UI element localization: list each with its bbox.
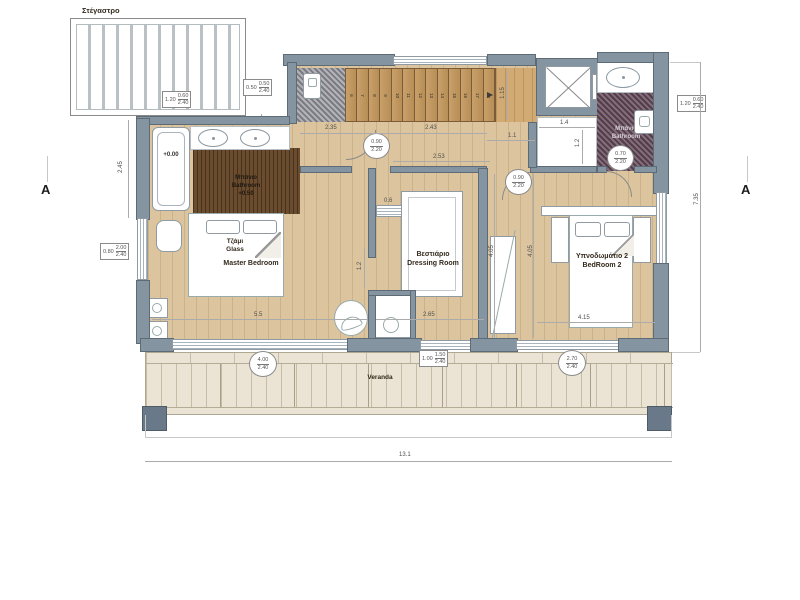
slab-edge <box>145 437 672 438</box>
wall <box>653 263 669 345</box>
dim-line <box>393 161 490 162</box>
dim-box-pergola-num: 0.60 <box>178 93 189 100</box>
dim-label: 4.15 <box>578 315 590 321</box>
fixture-bowl <box>152 303 162 313</box>
wall <box>634 166 657 173</box>
dim-box-top: 0.50 0.50 2.40 <box>243 79 272 96</box>
closet-rod <box>408 197 456 291</box>
dim-label-total-width: 13.1 <box>399 452 411 458</box>
staircase: 6 7 8 9 10 11 12 13 14 15 16 17 18 <box>345 68 496 122</box>
dim-line <box>487 140 535 141</box>
ext-line <box>670 62 700 63</box>
master-sink-2 <box>240 129 270 147</box>
pergola-outline <box>70 18 246 116</box>
slab-edge <box>671 415 672 437</box>
stair-tread: 15 <box>449 69 460 121</box>
wall <box>140 338 174 352</box>
dim-line <box>582 130 583 164</box>
dim-line-total-width <box>145 461 672 462</box>
wall <box>136 118 150 220</box>
window-right <box>656 192 667 265</box>
dim-label: 5.5 <box>254 312 262 318</box>
wall <box>528 122 537 168</box>
dim-circle-window-bedroom2: 2.70 2.40 <box>558 350 586 376</box>
stair-tread: 8 <box>369 69 380 121</box>
dim-line <box>537 322 655 323</box>
ext-line <box>672 352 700 353</box>
dim-box-veranda: 1.00 1.50 2.40 <box>419 350 448 367</box>
dim-box-top-num: 0.50 <box>259 81 270 88</box>
master-bath-label: Μπάνιο Bathroom +0.50 <box>196 175 296 198</box>
window-master-bedroom <box>172 339 348 350</box>
dim-line <box>300 133 393 134</box>
dim-box-pergola: 1.20 0.60 2.40 <box>162 91 191 108</box>
wall <box>287 62 297 124</box>
dim-label: 0.6 <box>384 198 392 204</box>
pillow <box>206 220 240 234</box>
veranda-border-tiles <box>146 353 673 364</box>
section-marker-left: A <box>41 182 50 197</box>
dim-label: 4.05 <box>489 245 495 257</box>
window-bedroom2 <box>516 340 620 350</box>
dim-label: 2.43 <box>425 125 437 131</box>
master-sink-1 <box>198 129 228 147</box>
wall <box>368 290 376 342</box>
dim-box-top-den: 2.40 <box>259 88 270 94</box>
wall <box>597 52 655 63</box>
wall <box>300 166 352 173</box>
wall <box>390 166 487 173</box>
stair-tread: 7 <box>357 69 368 121</box>
dim-line <box>506 70 507 120</box>
bath2-toilet-seat <box>639 116 650 127</box>
stair-tread: 12 <box>415 69 426 121</box>
stair-tread: 11 <box>403 69 414 121</box>
wall <box>530 166 597 173</box>
dim-circle-door-master: 0.90 2.20 <box>363 133 390 159</box>
wall <box>368 290 416 296</box>
dim-label: 1.4 <box>560 120 568 126</box>
dim-label: 1.2 <box>575 139 581 147</box>
dim-label: 4.05 <box>528 245 534 257</box>
dressing-label: Βεστιάριο Dressing Room <box>388 250 478 268</box>
window-left <box>137 218 148 280</box>
wall <box>347 338 422 352</box>
dim-box-top-width: 0.50 <box>246 85 257 91</box>
stair-tread: 16 <box>461 69 472 121</box>
wall <box>470 338 518 352</box>
wc-toilet-tank <box>308 78 317 87</box>
dim-line-total-height <box>700 62 701 352</box>
master-bedroom-label: Master Bedroom <box>196 259 306 268</box>
elevator-car <box>545 66 591 108</box>
section-marker-right: A <box>741 182 750 197</box>
bath2-sink-drain <box>622 76 625 79</box>
section-line <box>47 156 48 182</box>
dressing-shelf <box>376 205 402 217</box>
dim-box-pergola-den: 2.40 <box>178 100 189 106</box>
chaise-chair <box>334 300 368 336</box>
window-small <box>420 340 472 350</box>
wall <box>283 54 395 66</box>
wall <box>618 338 669 352</box>
stair-tread: 6 <box>346 69 357 121</box>
veranda-label: Veranda <box>340 374 420 382</box>
dim-label: 2.45 <box>118 161 124 173</box>
stair-tread: 17 <box>472 69 483 121</box>
fixture-bowl <box>152 326 162 336</box>
bedroom2-label: Υπνοδωμάτιο 2 BedRoom 2 <box>560 252 644 270</box>
wall <box>136 280 150 344</box>
pillow <box>575 222 601 237</box>
dim-line <box>393 133 487 134</box>
bath2-sink <box>606 67 640 88</box>
stair-tread: 9 <box>380 69 391 121</box>
dim-box-pergola-width: 1.20 <box>165 97 176 103</box>
stair-tread: 13 <box>426 69 437 121</box>
dim-label: 1.15 <box>500 87 506 99</box>
stair-tread: 14 <box>438 69 449 121</box>
closet-door-line <box>491 230 515 340</box>
veranda <box>145 352 672 415</box>
bathtub <box>152 127 190 211</box>
dim-line <box>376 319 484 320</box>
pergola-label: Στέγαστρο <box>82 6 120 16</box>
wall <box>136 116 290 125</box>
wall <box>487 54 536 66</box>
glass-label: Τζάμι Glass <box>205 238 265 255</box>
wall <box>368 168 376 258</box>
dim-line <box>128 120 129 218</box>
dim-label-total-height: 7.35 <box>694 193 700 205</box>
wc-toilet <box>303 73 321 99</box>
dressing-closet <box>401 191 463 297</box>
chaise-detail <box>339 314 364 332</box>
dim-label: 1.2 <box>357 262 363 270</box>
window-stairs <box>393 56 487 65</box>
wall <box>410 290 416 342</box>
dim-box-right: 1.20 0.60 2.40 <box>677 95 706 112</box>
stair-direction-arrow <box>487 92 493 98</box>
dim-label: 2.65 <box>423 312 435 318</box>
bathtub-inner <box>157 132 185 206</box>
dim-circle-door-bath2: 0.70 2.20 <box>607 145 634 171</box>
dim-label: 1.1 <box>508 133 516 139</box>
floor-plan-canvas: Στέγαστρο 1.20 0.60 2.40 0.50 0.50 2.40 … <box>0 0 800 600</box>
veranda-column <box>647 406 672 431</box>
armchair <box>156 220 182 252</box>
sink-drain <box>212 137 215 140</box>
dressing-cabinet <box>374 294 412 338</box>
dim-line <box>152 319 368 320</box>
dim-line <box>364 248 365 288</box>
dim-circle-door-bedroom2: 0.90 2.20 <box>505 169 532 195</box>
dim-circle-window-master: 4.00 2.40 <box>249 351 277 377</box>
pergola-slats <box>76 24 240 110</box>
dim-label: 2.35 <box>325 125 337 131</box>
section-line <box>747 156 748 182</box>
sink-drain <box>254 137 257 140</box>
veranda-tiles <box>146 364 673 408</box>
stair-tread: 10 <box>392 69 403 121</box>
dim-line <box>539 127 595 128</box>
bedroom2-bed <box>569 215 633 328</box>
master-bed <box>188 213 284 297</box>
level-label: +0.00 <box>156 152 186 158</box>
dim-label: 2.53 <box>433 154 445 160</box>
wall <box>478 168 488 342</box>
slab-edge <box>145 415 146 437</box>
dim-box-left: 0.80 2.00 2.40 <box>100 243 129 260</box>
